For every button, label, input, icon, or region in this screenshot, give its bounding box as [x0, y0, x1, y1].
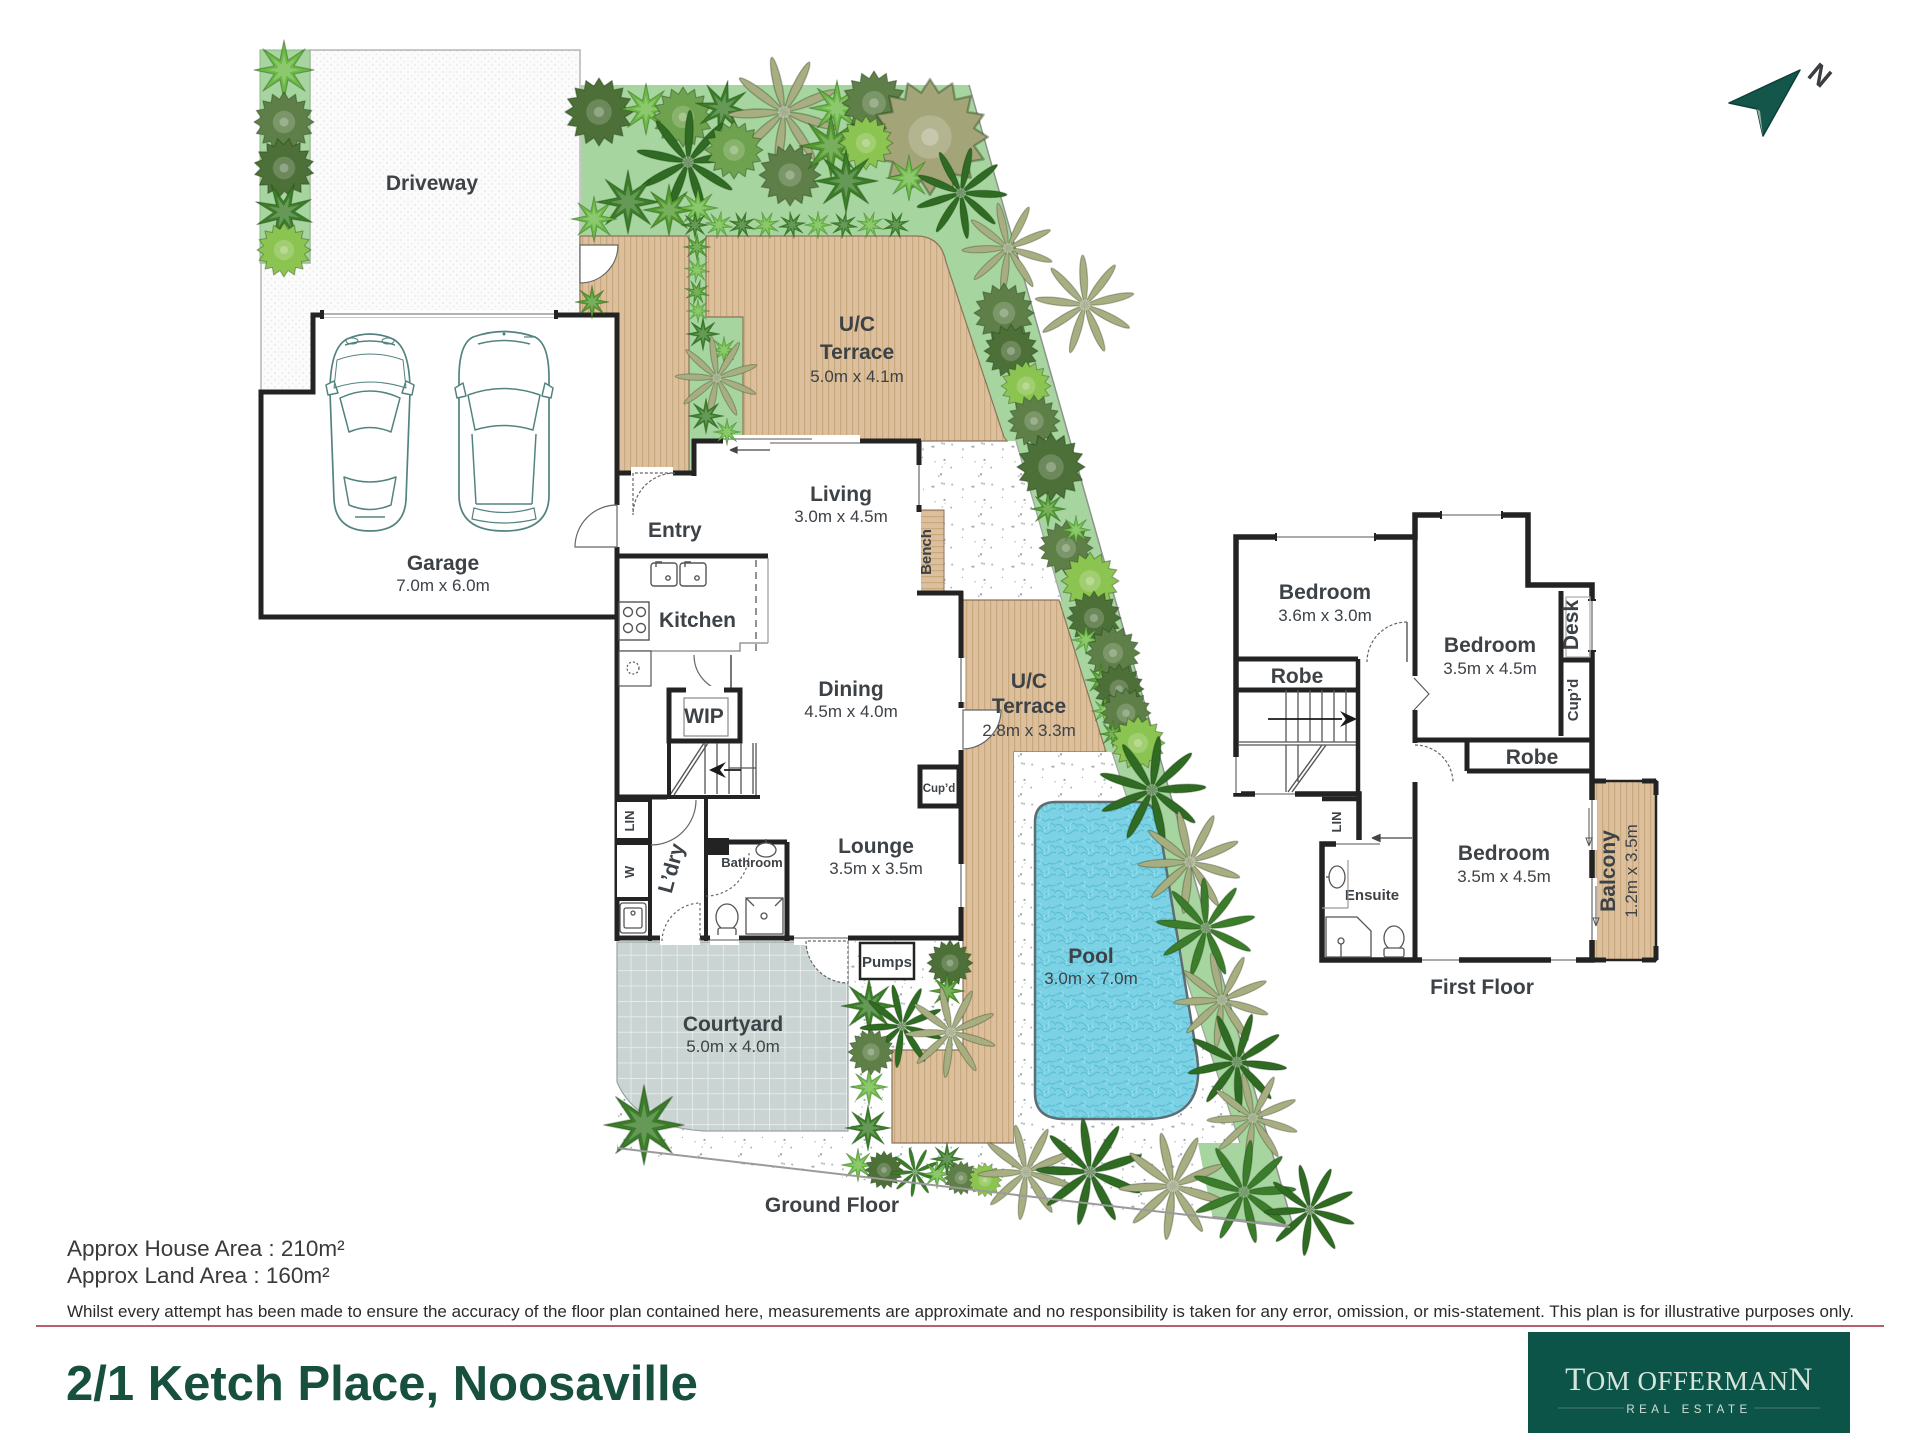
- svg-text:WIP: WIP: [684, 705, 724, 728]
- svg-text:Cup’d: Cup’d: [923, 783, 956, 795]
- svg-text:LIN: LIN: [1329, 812, 1344, 833]
- svg-text:Bedroom: Bedroom: [1458, 842, 1550, 865]
- svg-text:Dining: Dining: [818, 678, 883, 701]
- svg-text:Approx Land Area : 160m²: Approx Land Area : 160m²: [67, 1263, 330, 1288]
- svg-text:Robe: Robe: [1271, 665, 1324, 688]
- svg-text:3.0m x 4.5m: 3.0m x 4.5m: [794, 507, 888, 526]
- svg-text:3.5m x 3.5m: 3.5m x 3.5m: [829, 859, 923, 878]
- svg-text:3.5m x 4.5m: 3.5m x 4.5m: [1457, 867, 1551, 886]
- svg-text:Lounge: Lounge: [838, 835, 914, 858]
- svg-text:4.5m x 4.0m: 4.5m x 4.0m: [804, 702, 898, 721]
- svg-text:Driveway: Driveway: [386, 172, 479, 195]
- svg-text:2/1 Ketch Place, Noosaville: 2/1 Ketch Place, Noosaville: [66, 1357, 698, 1411]
- svg-text:7.0m x 6.0m: 7.0m x 6.0m: [396, 576, 490, 595]
- svg-text:Garage: Garage: [407, 552, 479, 575]
- svg-text:W: W: [622, 865, 637, 878]
- svg-text:TOM OFFERMANN: TOM OFFERMANN: [1565, 1362, 1813, 1398]
- svg-text:Approx House Area : 210m²: Approx House Area : 210m²: [67, 1236, 345, 1261]
- svg-text:Entry: Entry: [648, 519, 702, 542]
- svg-text:3.5m x 4.5m: 3.5m x 4.5m: [1443, 659, 1537, 678]
- svg-text:3.6m x 3.0m: 3.6m x 3.0m: [1278, 606, 1372, 625]
- svg-text:Ensuite: Ensuite: [1345, 887, 1399, 904]
- svg-text:5.0m x 4.1m: 5.0m x 4.1m: [810, 367, 904, 386]
- svg-text:Kitchen: Kitchen: [659, 609, 736, 632]
- svg-text:5.0m x 4.0m: 5.0m x 4.0m: [686, 1037, 780, 1056]
- svg-text:Living: Living: [810, 483, 872, 506]
- svg-text:REAL ESTATE: REAL ESTATE: [1626, 1404, 1751, 1416]
- svg-text:Pool: Pool: [1068, 945, 1114, 968]
- svg-text:2.8m x 3.3m: 2.8m x 3.3m: [982, 721, 1076, 740]
- svg-text:Cup’d: Cup’d: [1565, 679, 1582, 722]
- svg-text:Ground Floor: Ground Floor: [765, 1194, 899, 1217]
- svg-text:Terrace: Terrace: [820, 341, 894, 364]
- svg-text:U/C: U/C: [839, 313, 875, 336]
- svg-text:1.2m x 3.5m: 1.2m x 3.5m: [1622, 824, 1641, 918]
- svg-text:3.0m x 7.0m: 3.0m x 7.0m: [1044, 969, 1138, 988]
- svg-text:Bathroom: Bathroom: [721, 855, 782, 870]
- svg-text:First Floor: First Floor: [1430, 976, 1534, 999]
- svg-text:Balcony: Balcony: [1597, 830, 1620, 912]
- svg-text:Whilst every attempt has been: Whilst every attempt has been made to en…: [67, 1302, 1854, 1321]
- svg-text:Bedroom: Bedroom: [1279, 581, 1371, 604]
- svg-text:Terrace: Terrace: [992, 695, 1066, 718]
- svg-text:Desk: Desk: [1560, 600, 1583, 651]
- svg-text:Courtyard: Courtyard: [683, 1013, 783, 1036]
- svg-text:LIN: LIN: [622, 811, 637, 832]
- svg-text:U/C: U/C: [1011, 670, 1047, 693]
- svg-text:Bedroom: Bedroom: [1444, 634, 1536, 657]
- svg-text:Pumps: Pumps: [862, 954, 912, 971]
- svg-text:Robe: Robe: [1506, 746, 1559, 769]
